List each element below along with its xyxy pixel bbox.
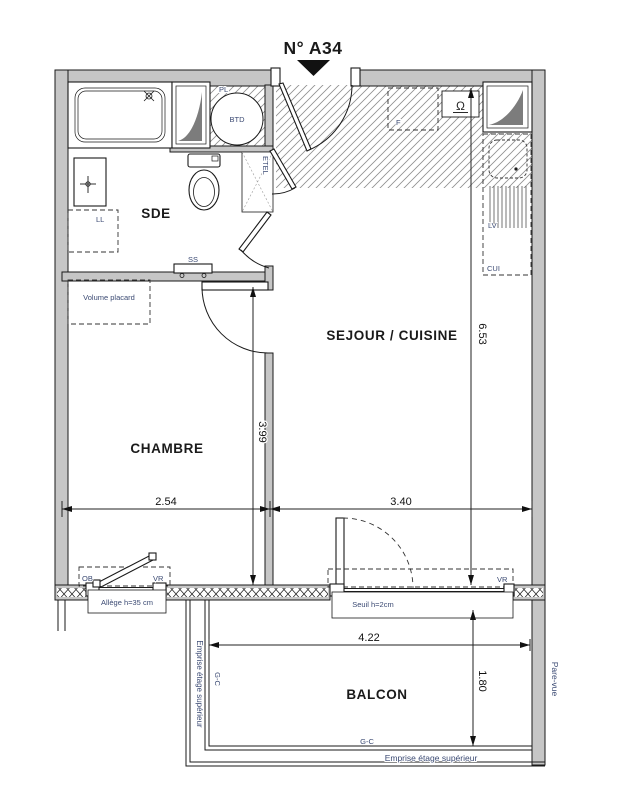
dim-sejour-depth: 6.53: [476, 323, 488, 344]
label-fridge: F: [396, 118, 401, 127]
entry-door-post-left: [271, 68, 280, 86]
label-vr-door: VR: [497, 575, 508, 584]
label-allege: Allège h=35 cm: [101, 598, 153, 607]
label-emprise-bottom: Emprise étage supérieur: [385, 753, 478, 763]
dim-chambre-depth: 3.99: [256, 421, 268, 442]
label-ob: OB: [82, 574, 93, 583]
wall-partition-bottom: [265, 353, 273, 585]
label-etel: ETEL: [261, 156, 270, 175]
label-btd: BTD: [230, 115, 246, 124]
label-gc-bottom: G-C: [360, 737, 374, 746]
room-label-balcon: BALCON: [346, 687, 407, 702]
entry-door-post-right: [351, 68, 360, 86]
wall-right: [532, 70, 545, 765]
wall-partition-top: [265, 85, 273, 148]
dim-balcon-depth: 1.80: [476, 670, 488, 691]
wall-left: [55, 70, 68, 600]
room-label-chambre: CHAMBRE: [130, 441, 203, 456]
label-seuil: Seuil h=2cm: [352, 600, 393, 609]
room-label-sde: SDE: [141, 206, 171, 221]
label-ss: SS: [188, 255, 198, 264]
label-lv: LV: [488, 221, 497, 230]
dim-balcon-width: 4.22: [358, 632, 379, 644]
toilet: [188, 154, 220, 210]
label-vr-window: VR: [153, 574, 164, 583]
floor-plan-svg: N° A34 SDE CHAMBRE SEJOUR / CUISINE BALC…: [0, 0, 630, 800]
label-cui: CUI: [487, 264, 500, 273]
label-pl: PL: [219, 85, 228, 94]
plan-title: N° A34: [284, 38, 343, 58]
floor-plan-page: N° A34 SDE CHAMBRE SEJOUR / CUISINE BALC…: [0, 0, 630, 800]
water-heater-symbol: Ω: [456, 99, 465, 113]
shower-tray: [68, 82, 172, 148]
label-pare-vue: Pare-vue: [550, 662, 560, 697]
washbasin: [74, 158, 106, 206]
label-gc-left: G-C: [213, 672, 222, 686]
label-emprise-left: Emprise étage supérieur: [195, 640, 204, 727]
label-volume-placard: Volume placard: [83, 293, 135, 302]
label-ll: LL: [96, 215, 104, 224]
dim-sejour-width: 3.40: [390, 496, 411, 508]
room-label-sejour: SEJOUR / CUISINE: [326, 328, 457, 343]
dim-chambre-width: 2.54: [155, 496, 176, 508]
